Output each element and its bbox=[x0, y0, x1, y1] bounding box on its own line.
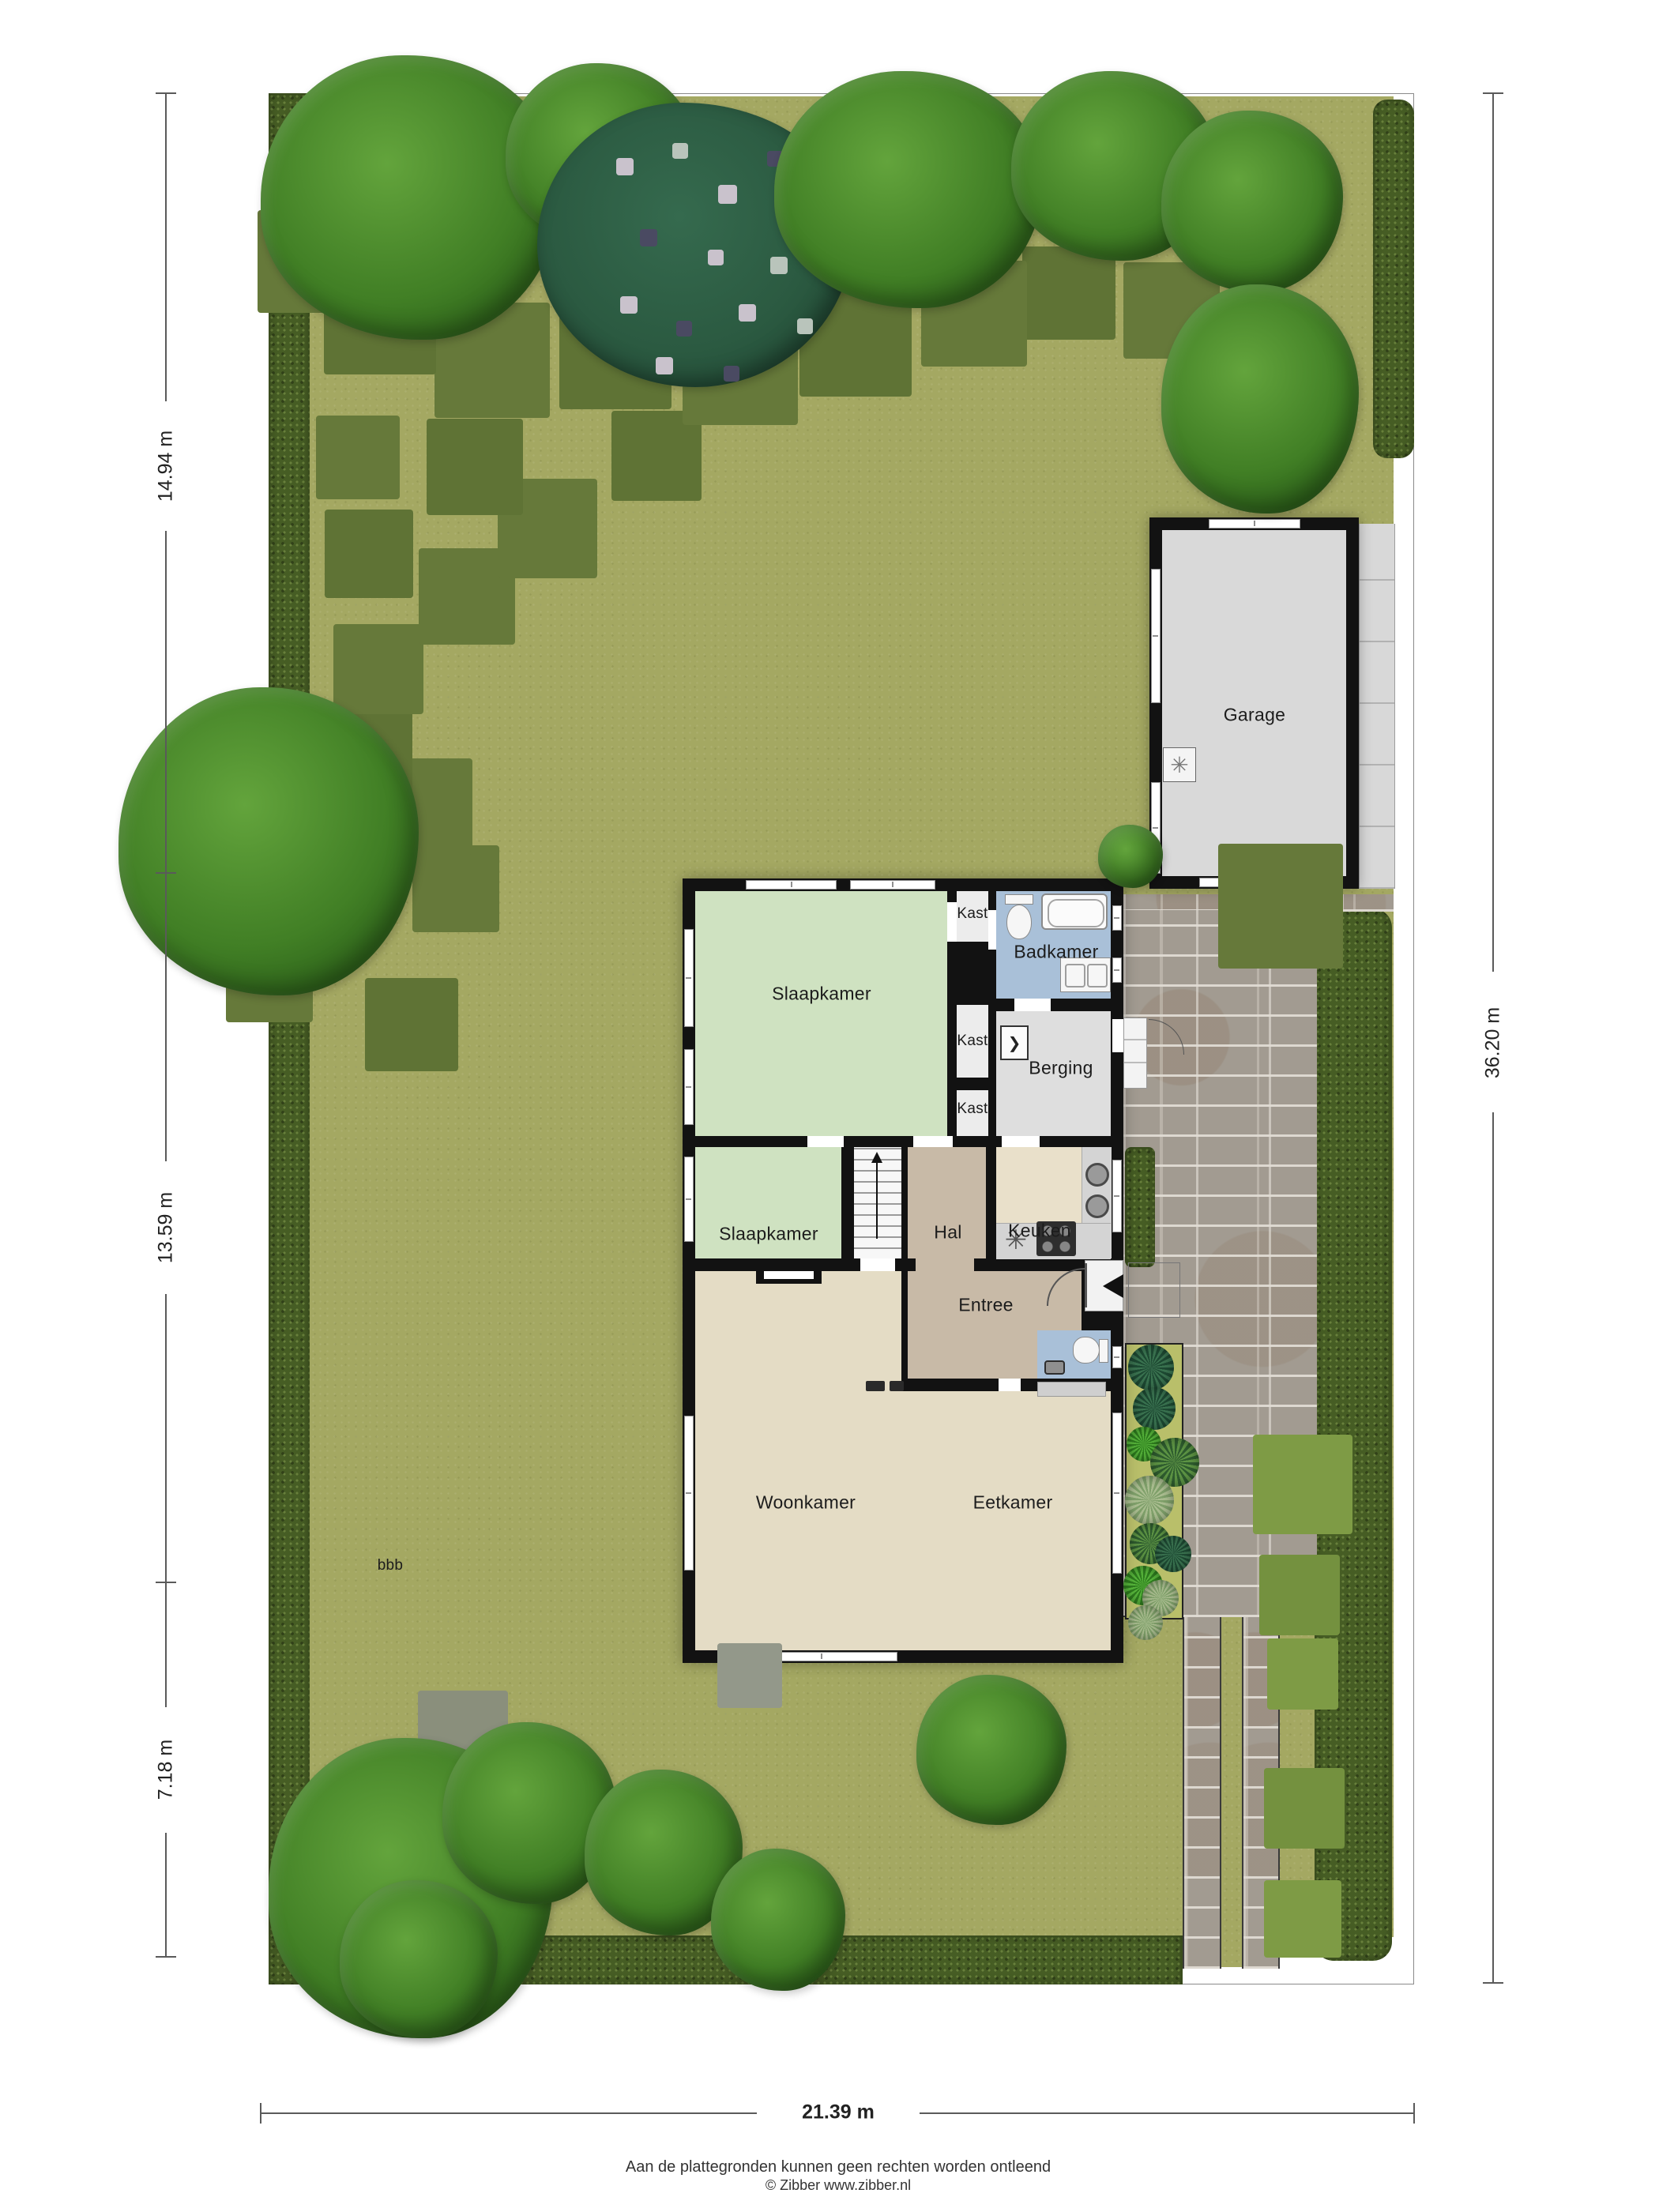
bathtub-inner bbox=[1048, 899, 1104, 927]
window-left-4 bbox=[684, 1416, 694, 1571]
garage-window-left-1 bbox=[1151, 569, 1161, 703]
dim-right-seg-a bbox=[1492, 93, 1494, 972]
dim-left-seg-3b bbox=[165, 1833, 167, 1957]
label-woonkamer: Woonkamer bbox=[756, 1492, 856, 1514]
window-top-1 bbox=[746, 880, 837, 890]
meter-icon-1 bbox=[866, 1381, 885, 1391]
eetkamer-cabinet bbox=[1037, 1382, 1106, 1397]
copyright-text: © Zibber www.zibber.nl bbox=[766, 2177, 911, 2194]
label-eetkamer: Eetkamer bbox=[973, 1492, 1053, 1514]
plant-fern-10 bbox=[1128, 1605, 1163, 1640]
dim-bottom-seg-b bbox=[920, 2112, 1414, 2114]
tree-bottom-6 bbox=[916, 1675, 1066, 1825]
woonkamer-eetkamer-opening bbox=[901, 1391, 908, 1650]
label-kast-2: Kast bbox=[957, 1033, 987, 1050]
window-right-badkamer-1 bbox=[1112, 905, 1122, 931]
stairs-up-line bbox=[876, 1160, 878, 1239]
meter-icon-2 bbox=[890, 1381, 904, 1391]
basin-left bbox=[1065, 964, 1085, 987]
label-slaapkamer-2: Slaapkamer bbox=[719, 1224, 818, 1245]
dim-bottom-tick-right bbox=[1413, 2103, 1415, 2124]
garage-building: ✳ bbox=[1149, 517, 1359, 889]
berging-step bbox=[1123, 1018, 1147, 1089]
label-entree: Entree bbox=[958, 1295, 1014, 1316]
wc-basin-icon bbox=[1044, 1360, 1065, 1375]
garage-door-bottom bbox=[1199, 878, 1310, 887]
label-kast-1: Kast bbox=[957, 905, 987, 923]
dim-right-tick-bottom bbox=[1483, 1982, 1503, 1984]
window-right-toilet bbox=[1112, 1346, 1122, 1368]
hedge-left bbox=[269, 93, 310, 1984]
toilet-tank-wc bbox=[1099, 1339, 1108, 1363]
window-left-2 bbox=[684, 1049, 694, 1125]
plant-fern-7 bbox=[1155, 1536, 1191, 1572]
door-gap-slaapkamer2 bbox=[807, 1136, 844, 1147]
front-door-leaf bbox=[1085, 1263, 1087, 1307]
plant-fern-5 bbox=[1125, 1476, 1174, 1525]
dim-label-left-bottom: 7.18 m bbox=[155, 1740, 178, 1800]
door-gap-woonkamer bbox=[860, 1258, 895, 1271]
window-right-badkamer-2 bbox=[1112, 957, 1122, 983]
tree-bottom-5 bbox=[340, 1880, 498, 2038]
label-kast-3: Kast bbox=[957, 1100, 987, 1118]
disclaimer-text: Aan de plattegronden kunnen geen rechten… bbox=[626, 2158, 1051, 2176]
dim-left-seg-1a bbox=[165, 93, 167, 401]
fireplace-slot bbox=[764, 1271, 814, 1279]
driveway-top-strip bbox=[1123, 894, 1394, 912]
tire-track-right bbox=[1242, 1617, 1280, 1969]
stairs-up-arrow-icon bbox=[871, 1152, 882, 1163]
dim-left-seg-2a bbox=[165, 873, 167, 1161]
door-gap-entree-eetkamer bbox=[999, 1379, 1021, 1391]
window-left-1 bbox=[684, 929, 694, 1027]
entry-arrow-icon bbox=[1103, 1274, 1123, 1298]
hedge-right bbox=[1315, 908, 1392, 1961]
boiler-icon: ❯ bbox=[1000, 1025, 1029, 1060]
door-gap-hal-top bbox=[913, 1136, 953, 1147]
room-woonkamer bbox=[695, 1271, 901, 1650]
tree-left-middle bbox=[118, 687, 419, 995]
basin-right bbox=[1087, 964, 1108, 987]
hedge-top-right bbox=[1373, 100, 1414, 458]
dim-bottom-seg-a bbox=[261, 2112, 757, 2114]
door-gap-keuken-top bbox=[1002, 1136, 1040, 1147]
dim-left-seg-3a bbox=[165, 1582, 167, 1707]
door-gap-kast bbox=[947, 902, 957, 942]
berging-back-door bbox=[1112, 1019, 1123, 1052]
house: ❯ ✳ bbox=[683, 878, 1123, 1663]
track-median-grass bbox=[1221, 1617, 1242, 1967]
door-gap-berging-badkamer bbox=[1014, 999, 1051, 1011]
bush-by-garage bbox=[1098, 825, 1163, 888]
plant-fern-1 bbox=[1128, 1345, 1174, 1390]
dim-label-left-middle: 13.59 m bbox=[155, 1192, 178, 1263]
front-doormat bbox=[1128, 1262, 1180, 1318]
garage-side-path bbox=[1359, 524, 1395, 889]
label-badkamer: Badkamer bbox=[1014, 942, 1098, 963]
garage-window-top bbox=[1209, 519, 1300, 529]
label-slaapkamer-1: Slaapkamer bbox=[772, 984, 871, 1005]
dim-left-seg-1b bbox=[165, 531, 167, 873]
bathtub-icon bbox=[1041, 893, 1108, 930]
label-berging: Berging bbox=[1029, 1058, 1093, 1079]
tree-top-5 bbox=[1161, 111, 1343, 292]
window-right-keuken bbox=[1112, 1160, 1122, 1232]
dim-left-seg-2b bbox=[165, 1294, 167, 1582]
bush-circles-gray bbox=[0, 0, 2, 2]
toilet-tank-badkamer bbox=[1005, 894, 1033, 905]
dim-label-bottom: 21.39 m bbox=[802, 2101, 875, 2124]
room-eetkamer bbox=[908, 1391, 1111, 1650]
label-keuken: Keuken bbox=[1008, 1221, 1071, 1242]
label-hal: Hal bbox=[934, 1222, 961, 1243]
hedge-small-front bbox=[1125, 1147, 1155, 1267]
window-bottom-1 bbox=[746, 1652, 897, 1661]
garden-floorplan-canvas: ✳ bbox=[0, 0, 1659, 2212]
kitchen-sink-1 bbox=[1085, 1163, 1109, 1187]
tire-track-left bbox=[1183, 1617, 1221, 1969]
bush-flower-dots bbox=[553, 118, 555, 120]
window-left-3 bbox=[684, 1157, 694, 1242]
plant-fern-2 bbox=[1133, 1387, 1176, 1430]
room-slaapkamer-1 bbox=[695, 891, 947, 1136]
label-garden-note: bbb bbox=[378, 1557, 404, 1574]
window-top-2 bbox=[850, 880, 935, 890]
dim-left-tick-bottom bbox=[156, 1956, 176, 1958]
dim-right-seg-b bbox=[1492, 1112, 1494, 1983]
tree-bottom-4 bbox=[711, 1849, 845, 1991]
tree-top-3 bbox=[774, 71, 1043, 308]
dim-label-left-top: 14.94 m bbox=[155, 431, 178, 502]
toilet-icon-wc bbox=[1073, 1337, 1100, 1364]
tree-right-upper bbox=[1161, 284, 1359, 513]
washbasin-double-icon bbox=[1060, 957, 1111, 992]
kitchen-sink-2 bbox=[1085, 1194, 1109, 1218]
door-gap-badkamer bbox=[988, 910, 996, 950]
garage-boiler-icon: ✳ bbox=[1163, 747, 1196, 782]
garage-floor bbox=[1162, 530, 1346, 876]
staircase bbox=[854, 1147, 901, 1258]
toilet-icon-badkamer bbox=[1006, 905, 1032, 939]
window-right-eetkamer bbox=[1112, 1413, 1122, 1574]
dim-label-right: 36.20 m bbox=[1482, 1007, 1505, 1078]
driveway-edge-line-right bbox=[1280, 1616, 1317, 1617]
label-garage: Garage bbox=[1224, 705, 1286, 726]
hal-entree-opening bbox=[916, 1258, 974, 1271]
